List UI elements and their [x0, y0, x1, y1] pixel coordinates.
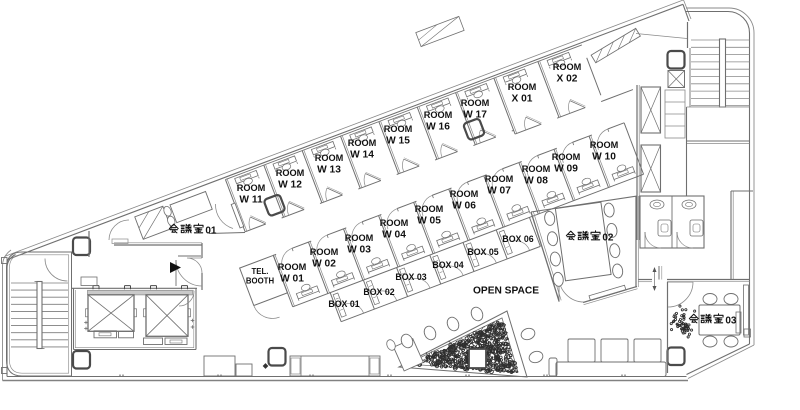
svg-text:W 01: W 01: [280, 274, 304, 285]
svg-text:01: 01: [205, 226, 217, 237]
svg-text:BOX 02: BOX 02: [363, 287, 394, 297]
svg-text:W 07: W 07: [487, 186, 511, 197]
svg-text:ROOM: ROOM: [415, 204, 444, 214]
svg-text:ROOM: ROOM: [508, 82, 537, 92]
svg-text:BOX 05: BOX 05: [467, 247, 498, 257]
svg-text:OPEN SPACE: OPEN SPACE: [473, 286, 539, 297]
svg-text:ROOM: ROOM: [590, 140, 619, 150]
svg-text:ROOM: ROOM: [522, 164, 551, 174]
svg-text:ROOM: ROOM: [450, 189, 479, 199]
svg-text:X 01: X 01: [512, 94, 533, 105]
svg-text:W 02: W 02: [312, 259, 336, 270]
svg-text:BOX 03: BOX 03: [395, 272, 426, 282]
svg-text:BOX 06: BOX 06: [502, 234, 533, 244]
svg-text:W 11: W 11: [239, 195, 263, 206]
svg-text:ROOM: ROOM: [424, 110, 453, 120]
svg-text:ROOM: ROOM: [315, 153, 344, 163]
svg-text:ROOM: ROOM: [345, 233, 374, 243]
svg-text:ROOM: ROOM: [485, 174, 514, 184]
svg-text:ROOM: ROOM: [348, 138, 377, 148]
svg-text:ROOM: ROOM: [237, 183, 266, 193]
svg-text:ROOM: ROOM: [276, 168, 305, 178]
svg-text:03: 03: [725, 316, 737, 327]
svg-text:ROOM: ROOM: [278, 262, 307, 272]
svg-text:ROOM: ROOM: [384, 124, 413, 134]
svg-text:W 06: W 06: [452, 201, 476, 212]
svg-text:ROOM: ROOM: [380, 218, 409, 228]
svg-text:02: 02: [602, 233, 614, 244]
svg-text:W 03: W 03: [347, 245, 371, 256]
svg-text:W 14: W 14: [350, 150, 374, 161]
svg-text:W 17: W 17: [463, 110, 487, 121]
svg-text:W 10: W 10: [592, 152, 616, 163]
svg-text:BOX 04: BOX 04: [432, 260, 463, 270]
svg-text:BOOTH: BOOTH: [246, 277, 275, 286]
svg-text:W 13: W 13: [317, 165, 341, 176]
svg-text:W 16: W 16: [426, 122, 450, 133]
svg-text:ROOM: ROOM: [552, 152, 581, 162]
svg-text:X 02: X 02: [557, 74, 578, 85]
svg-text:W 05: W 05: [417, 216, 441, 227]
svg-text:W 04: W 04: [382, 230, 406, 241]
svg-text:W 09: W 09: [554, 164, 578, 175]
svg-text:ROOM: ROOM: [461, 98, 490, 108]
svg-text:W 15: W 15: [386, 136, 410, 147]
svg-text:W 08: W 08: [524, 176, 548, 187]
svg-text:W 12: W 12: [278, 180, 302, 191]
svg-text:BOX 01: BOX 01: [328, 299, 359, 309]
svg-text:ROOM: ROOM: [310, 247, 339, 257]
svg-text:ROOM: ROOM: [553, 62, 582, 72]
svg-text:TEL.: TEL.: [252, 267, 269, 276]
